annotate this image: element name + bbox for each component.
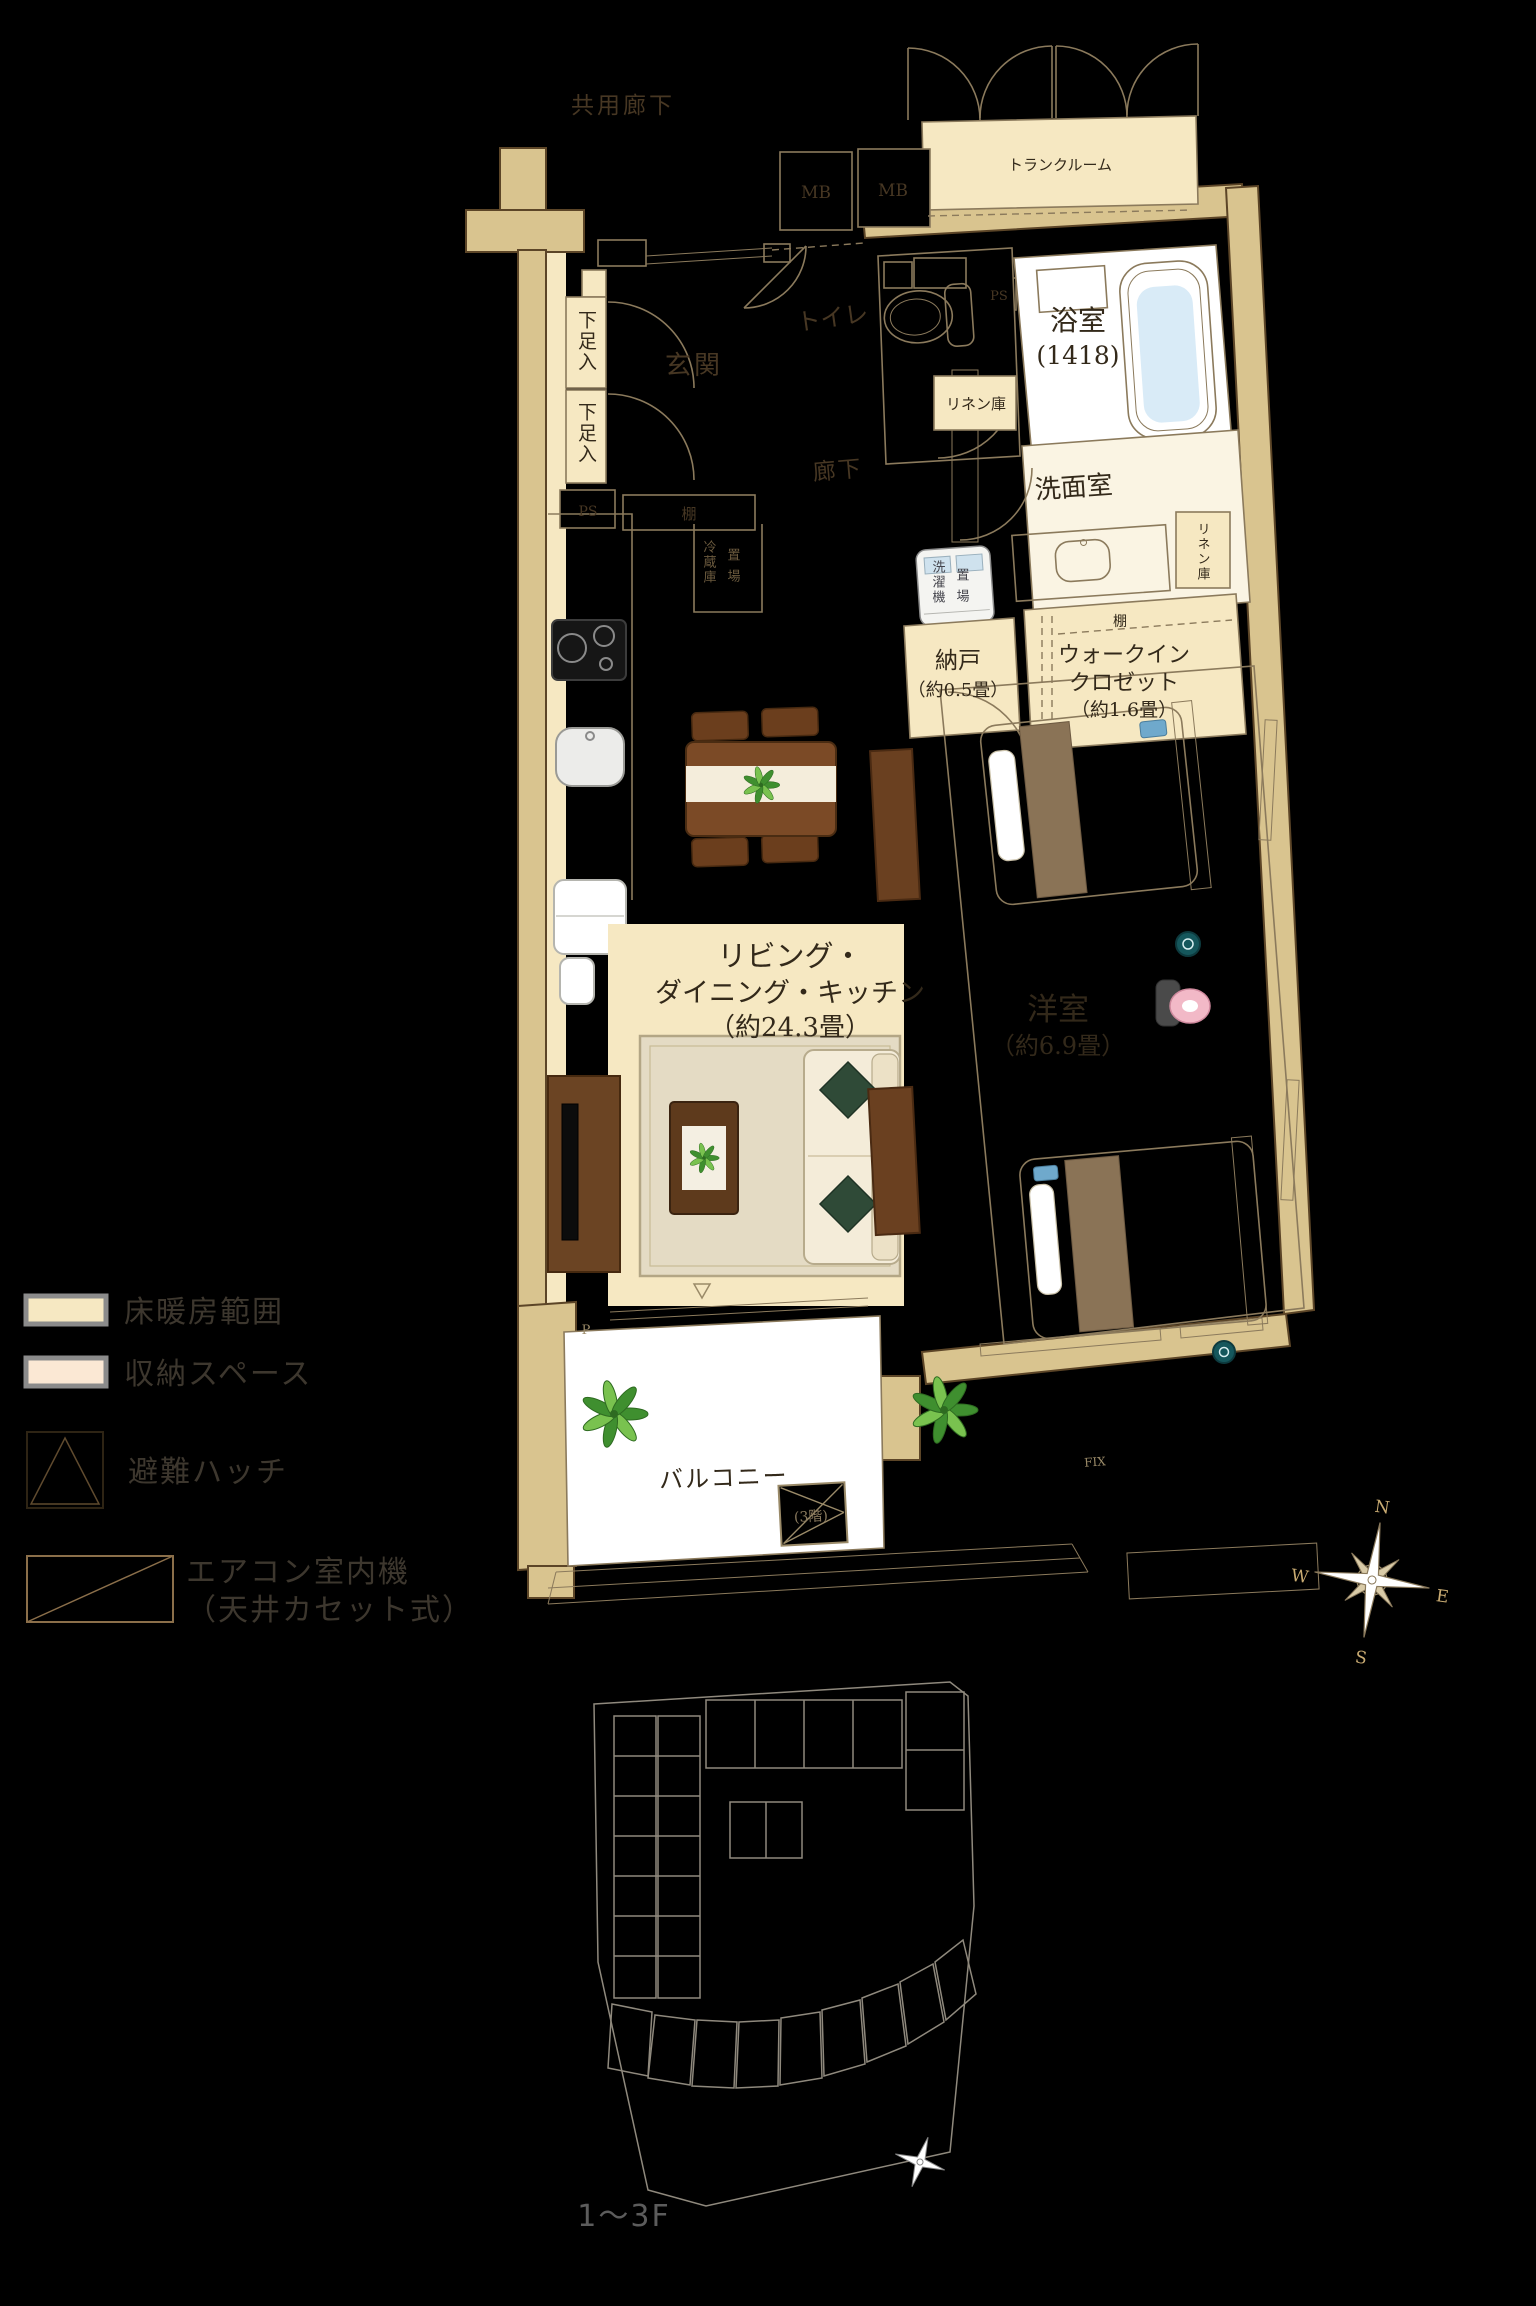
linen-closet-label: リネン庫: [1195, 522, 1211, 582]
washroom-label: 洗面室: [1034, 470, 1114, 505]
site-unit: [648, 2015, 695, 2085]
p-mark-label: P: [582, 1323, 591, 1338]
legend-swatch-floor-heating: [26, 1296, 106, 1324]
dining-set: [686, 707, 836, 867]
legend-aircon-icon: [27, 1556, 173, 1622]
fix-window-label: FIX: [1084, 1454, 1107, 1470]
fridge-space-label: 冷蔵庫: [701, 540, 717, 585]
trunk-room-label: トランクルーム: [1008, 156, 1112, 174]
tv-board: [548, 1076, 620, 1272]
shoe-cabinet-label: 下足入: [575, 402, 597, 465]
site-unit-highlighted: [822, 2000, 865, 2076]
compass-w-label: W: [1290, 1566, 1311, 1588]
washer-label: 洗濯機: [930, 560, 946, 605]
sink: [556, 728, 624, 786]
compass-e-label: E: [1435, 1586, 1450, 1608]
hatch-floor-label: (3階): [794, 1508, 829, 1526]
site-unit-fan: [608, 1940, 976, 2088]
ldk-label: リビング・: [717, 939, 862, 973]
toilet-label: トイレ: [795, 299, 870, 337]
shoe-cabinet-door-arcs: [608, 302, 694, 480]
floor-plan-page: 共用廊下 MB MB トランクルーム PS 浴室 (1418) トイレ 玄関 下…: [0, 0, 1536, 2306]
washer-label: 置場: [954, 568, 970, 610]
ldk-size: （約24.3畳）: [709, 1013, 871, 1043]
site-boundary: [594, 1682, 974, 2206]
entry-porch-lines: [646, 248, 772, 264]
legend-label-floor-heating: 床暖房範囲: [124, 1295, 284, 1330]
site-top-block: [706, 1692, 964, 1858]
wic-label: クロゼット: [1069, 671, 1179, 696]
legend-label-aircon-2: （天井カセット式）: [186, 1593, 474, 1628]
site-floor-label: 1〜3F: [577, 2199, 670, 2234]
wardrobe-2: [868, 1087, 920, 1235]
wic-shelf-label: 棚: [1113, 614, 1127, 630]
mb-label: MB: [878, 181, 908, 201]
site-plan: 1〜3F: [577, 1682, 976, 2234]
common-corridor-label: 共用廊下: [571, 93, 675, 119]
stool-icon: [1213, 1341, 1235, 1363]
storage-room: [904, 618, 1020, 738]
bedroom-size: （約6.9畳）: [991, 1032, 1125, 1060]
bathroom-size-label: (1418): [1036, 341, 1119, 370]
ps-label: PS: [578, 504, 597, 520]
storage-room-label: 納戸: [935, 648, 981, 674]
coffee-table: [670, 1102, 738, 1214]
site-unit: [736, 2020, 779, 2088]
site-compass-icon: [887, 2129, 953, 2195]
site-unit: [780, 2012, 822, 2085]
corridor-label: 廊下: [812, 456, 864, 486]
legend-hatch-icon: [27, 1432, 103, 1508]
bathroom-label: 浴室: [1050, 304, 1106, 337]
stool-icon: [1176, 932, 1200, 956]
legend-label-storage: 収納スペース: [124, 1357, 312, 1392]
legend-label-aircon: エアコン室内機: [186, 1555, 410, 1590]
wardrobe-1: [870, 749, 920, 901]
compass-rose: N E S W: [1280, 1487, 1461, 1679]
linen-closet-label: リネン庫: [946, 395, 1006, 413]
trunk-room-doors: [908, 44, 1198, 120]
wic-size: （約1.6畳）: [1071, 699, 1177, 721]
compass-s-label: S: [1354, 1648, 1368, 1669]
entrance-label: 玄関: [665, 351, 723, 381]
shelf-label: 棚: [681, 505, 696, 523]
wic-label: ウォークイン: [1058, 643, 1190, 668]
site-unit: [862, 1984, 906, 2062]
bedroom-label: 洋室: [1027, 992, 1089, 1028]
floor-plan-drawing: 共用廊下 MB MB トランクルーム PS 浴室 (1418) トイレ 玄関 下…: [0, 0, 1536, 2306]
compass-n-label: N: [1373, 1497, 1391, 1519]
legend-label-hatch: 避難ハッチ: [128, 1455, 288, 1490]
washroom-door-arc: [960, 468, 1032, 540]
site-left-wing: [614, 1716, 700, 1998]
ps-label: PS: [990, 289, 1008, 304]
legend-swatch-storage: [26, 1358, 106, 1386]
site-unit: [692, 2020, 737, 2088]
entrance-area: [560, 240, 864, 530]
balcony-label: バルコニー: [659, 1462, 789, 1495]
fridge-space-label: 置場: [725, 548, 741, 590]
shoe-cabinet-label: 下足入: [575, 310, 597, 373]
storage-room-size: （約0.5畳）: [908, 680, 1009, 701]
ldk-label: ダイニング・キッチン: [655, 978, 925, 1009]
bed-2: [1018, 1136, 1267, 1344]
stove: [552, 620, 626, 680]
legend: 床暖房範囲 収納スペース 避難ハッチ エアコン室内機 （天井カセット式）: [26, 1295, 474, 1628]
mb-label: MB: [801, 183, 831, 203]
